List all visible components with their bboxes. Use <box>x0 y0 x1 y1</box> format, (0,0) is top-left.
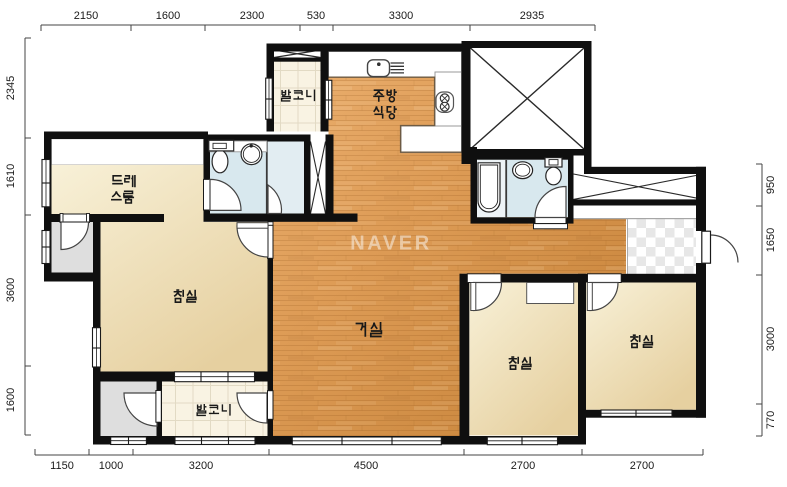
svg-text:3200: 3200 <box>189 460 213 472</box>
svg-text:3300: 3300 <box>389 10 413 22</box>
svg-text:1610: 1610 <box>5 164 17 188</box>
svg-text:950: 950 <box>765 176 777 194</box>
svg-text:2700: 2700 <box>630 460 654 472</box>
svg-text:3600: 3600 <box>5 278 17 302</box>
svg-text:2700: 2700 <box>511 460 535 472</box>
svg-text:3000: 3000 <box>765 327 777 351</box>
svg-text:770: 770 <box>765 411 777 429</box>
svg-text:NAVER: NAVER <box>350 233 432 255</box>
svg-text:4500: 4500 <box>354 460 378 472</box>
svg-text:1650: 1650 <box>765 228 777 252</box>
svg-text:2300: 2300 <box>240 10 264 22</box>
svg-text:2345: 2345 <box>5 76 17 100</box>
svg-text:2935: 2935 <box>520 10 544 22</box>
svg-text:1600: 1600 <box>5 388 17 412</box>
svg-text:1000: 1000 <box>99 460 123 472</box>
svg-text:2150: 2150 <box>74 10 98 22</box>
svg-text:1600: 1600 <box>156 10 180 22</box>
svg-text:1150: 1150 <box>50 460 74 472</box>
svg-text:530: 530 <box>307 10 325 22</box>
